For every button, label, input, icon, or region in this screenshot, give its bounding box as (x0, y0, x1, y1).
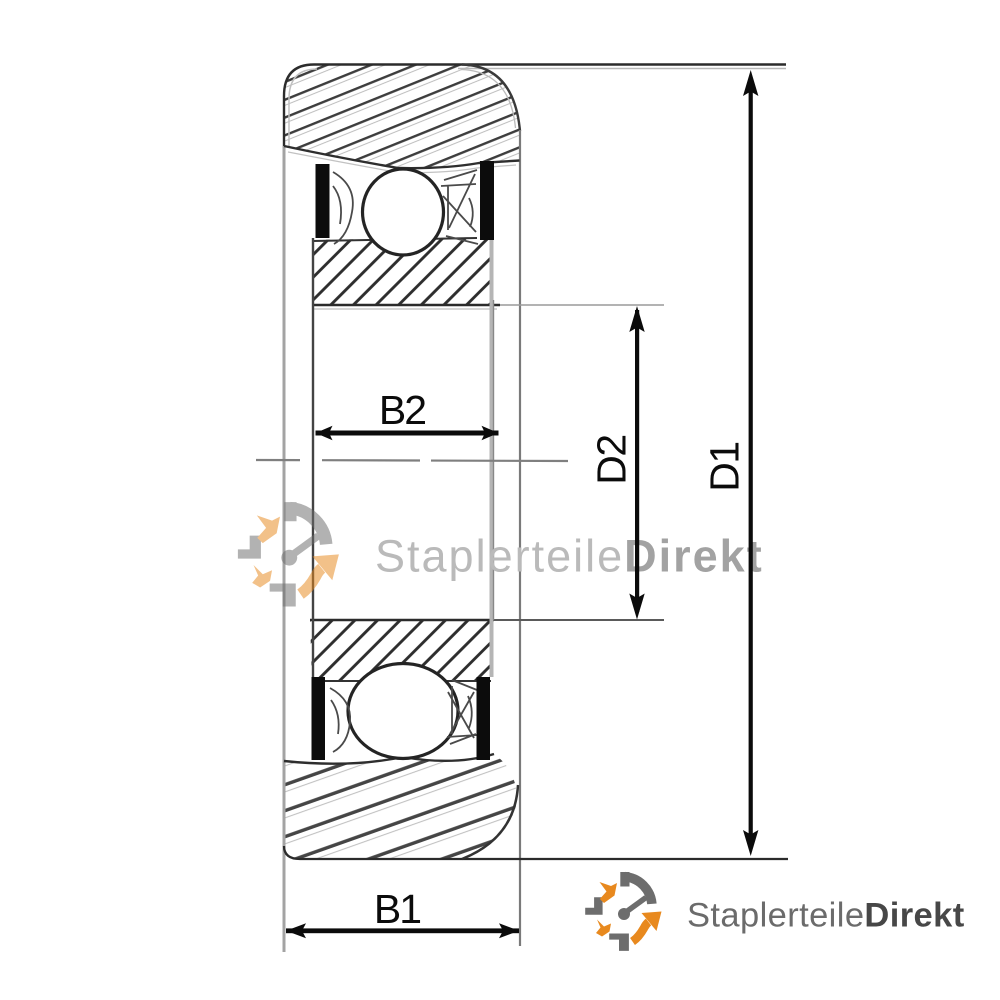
svg-text:StaplerteileDirekt: StaplerteileDirekt (375, 531, 764, 582)
svg-text:StaplerteileDirekt: StaplerteileDirekt (687, 897, 965, 935)
svg-text:B1: B1 (374, 886, 420, 932)
svg-text:D1: D1 (702, 442, 748, 491)
svg-text:D2: D2 (589, 435, 635, 484)
svg-text:B2: B2 (379, 387, 425, 433)
